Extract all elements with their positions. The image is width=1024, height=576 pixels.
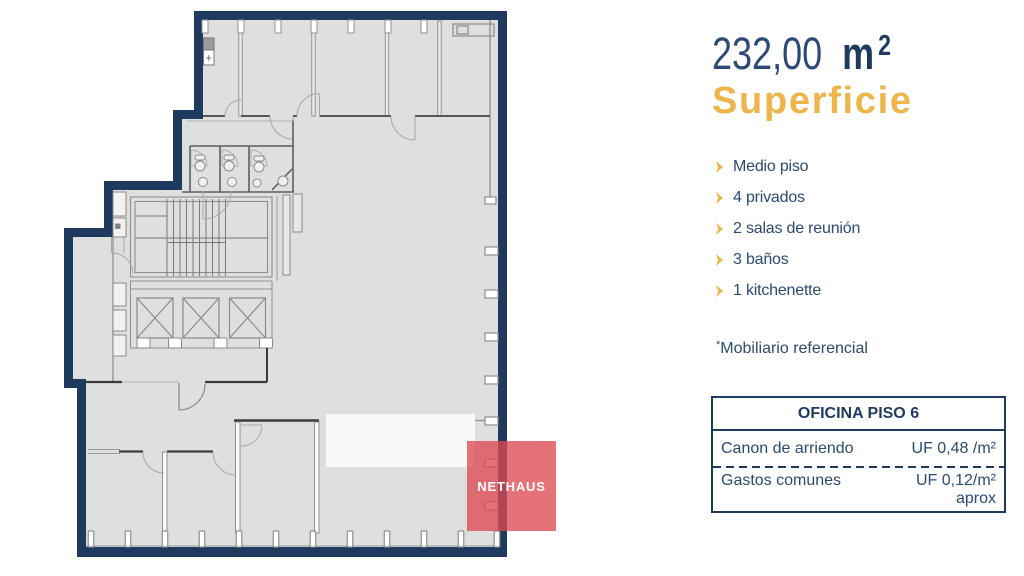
svg-text:NETHAUS: NETHAUS [477, 479, 545, 494]
